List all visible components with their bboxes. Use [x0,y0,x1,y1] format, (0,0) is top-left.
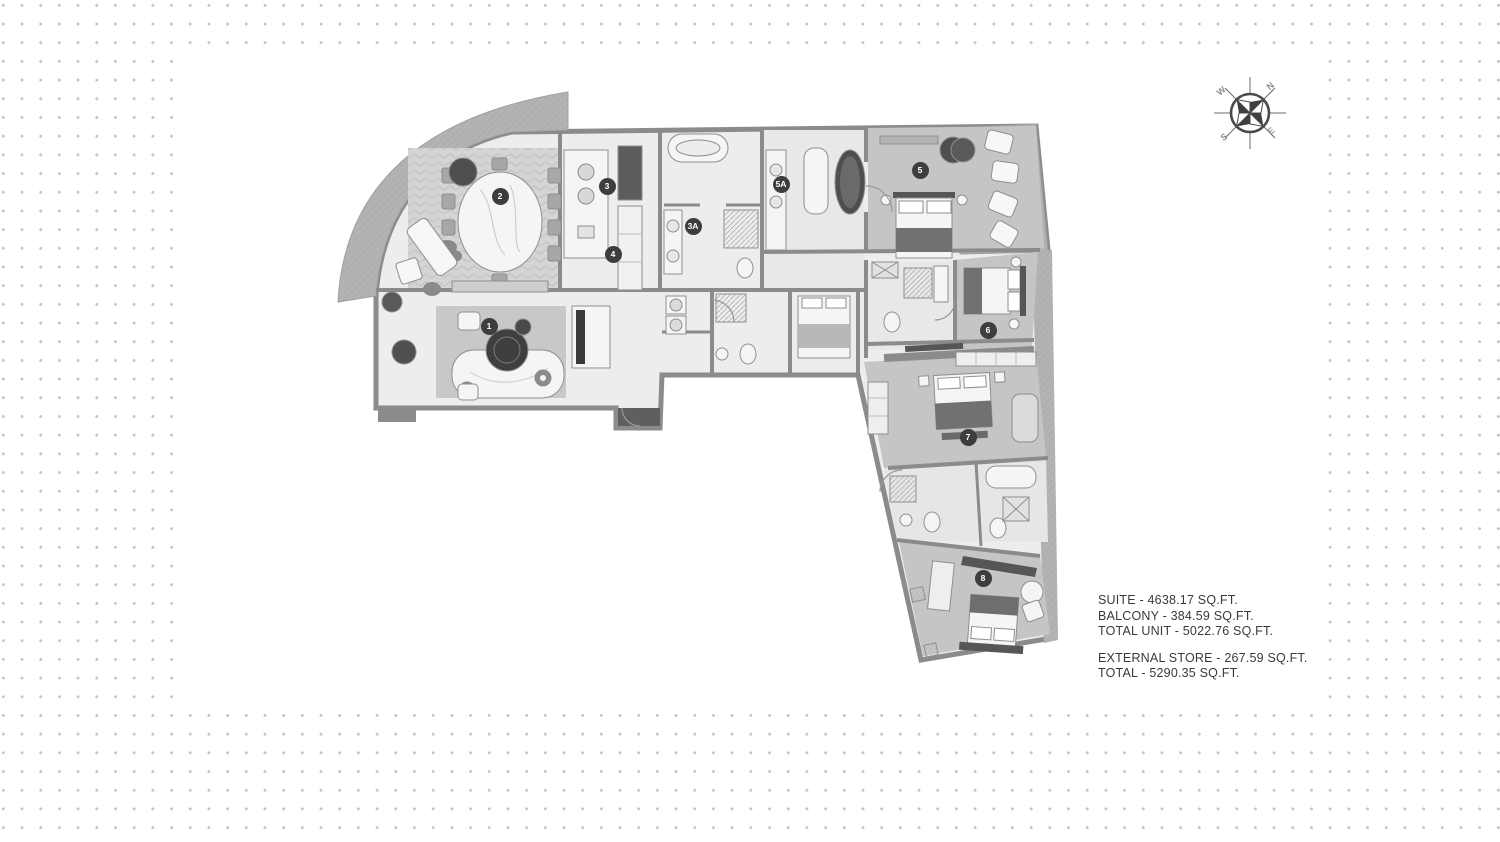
sideboard [452,281,548,292]
room-marker-2: 2 [492,188,509,205]
plant-pot [382,292,402,312]
balcony-area-line: BALCONY - 384.59 SQ.FT. [1098,609,1308,625]
sink [578,226,594,238]
total-unit-area-line: TOTAL UNIT - 5022.76 SQ.FT. [1098,624,1308,640]
tall-units [618,146,642,200]
room-marker-7: 7 [960,429,977,446]
armchair [458,312,480,330]
shower [890,476,916,502]
wardrobe [868,382,888,434]
chaise [1012,394,1038,442]
vanity [934,266,948,302]
shower [904,268,932,298]
area-summary: SUITE - 4638.17 SQ.FT. BALCONY - 384.59 … [1098,593,1308,682]
compass-rose-icon [1205,68,1295,158]
headboard [893,192,955,198]
terrace-plant [951,138,975,162]
chair [1021,581,1043,603]
room-marker-5A: 5A [773,176,790,193]
page: 1233A45A5678 N E S W [0,0,1500,842]
lounger [991,160,1020,183]
plant [423,282,441,296]
compass: N E S W [1205,68,1295,158]
room-marker-8: 8 [975,570,992,587]
room-marker-1: 1 [481,318,498,335]
room-marker-3: 3 [599,178,616,195]
area-summary-gap [1098,640,1308,651]
room-marker-4: 4 [605,246,622,263]
plant-pot [392,340,416,364]
total-area-line: TOTAL - 5290.35 SQ.FT. [1098,666,1308,682]
room-marker-5: 5 [912,162,929,179]
armchair [458,384,478,400]
basin [900,514,912,526]
suite-area-line: SUITE - 4638.17 SQ.FT. [1098,593,1308,609]
headboard [1020,266,1026,316]
toilet [740,344,756,364]
room-marker-3A: 3A [685,218,702,235]
toilet [924,512,940,532]
pouf [515,319,531,335]
shower [724,210,758,248]
tub [986,466,1036,488]
toilet [737,258,753,278]
console [880,136,938,144]
wardrobe [928,561,955,611]
blanket [896,228,952,252]
basin [716,348,728,360]
toilet [884,312,900,332]
tv [576,310,585,364]
plant-pot [449,158,477,186]
shower [716,294,746,322]
room-marker-6: 6 [980,322,997,339]
external-store-area-line: EXTERNAL STORE - 267.59 SQ.FT. [1098,651,1308,667]
chaise [804,148,828,214]
